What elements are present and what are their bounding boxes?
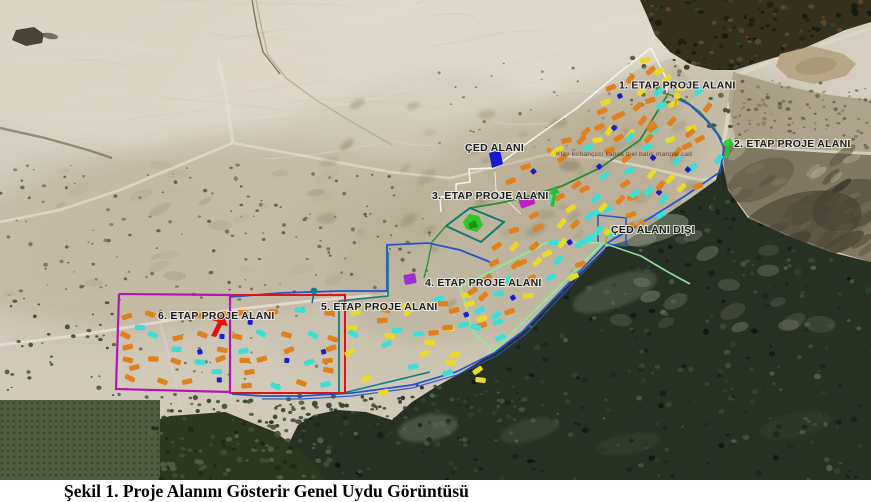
svg-text:ÇED ALANI DIŞI: ÇED ALANI DIŞI [611,224,695,236]
svg-text:Klav kırbançccı ilansa tlıel b: Klav kırbançccı ilansa tlıel balık manga… [556,151,692,158]
svg-text:2. ETAP PROJE ALANI: 2. ETAP PROJE ALANI [734,138,851,150]
svg-text:3. ETAP PROJE ALANI: 3. ETAP PROJE ALANI [432,190,549,202]
svg-text:4. ETAP PROJE ALANI: 4. ETAP PROJE ALANI [425,277,542,289]
svg-text:6. ETAP PROJE ALANI: 6. ETAP PROJE ALANI [158,310,275,322]
svg-text:1. ETAP PROJE ALANI: 1. ETAP PROJE ALANI [619,80,736,92]
svg-text:5. ETAP PROJE ALANI: 5. ETAP PROJE ALANI [321,301,438,313]
svg-text:ÇED ALANI: ÇED ALANI [465,142,524,154]
